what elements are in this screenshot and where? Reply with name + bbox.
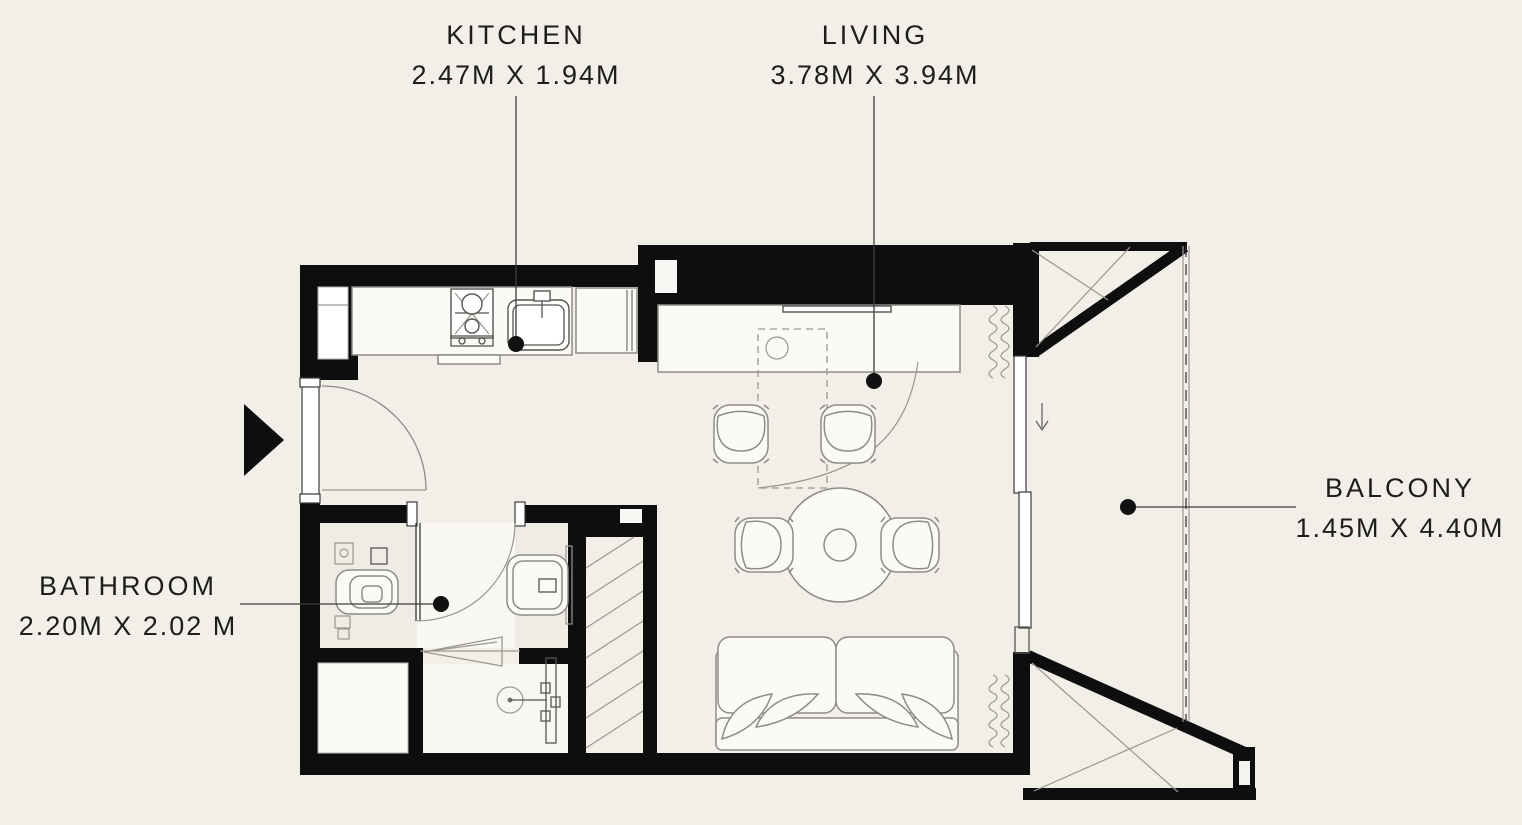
bathroom-room-size: 2.20M X 2.02 M xyxy=(19,611,238,641)
stove-icon xyxy=(451,289,493,346)
living-fixtures xyxy=(658,305,1009,750)
floor-plan-svg xyxy=(0,0,1522,825)
railing-icon xyxy=(1183,246,1189,722)
floor-plan: KITCHEN 2.47M X 1.94M LIVING 3.78M X 3.9… xyxy=(0,0,1522,825)
living-room-name: LIVING xyxy=(770,20,979,50)
dining-set xyxy=(713,405,939,602)
tv-shelf-icon xyxy=(783,306,891,312)
kitchen-room-name: KITCHEN xyxy=(411,20,620,50)
bathroom-leader-dot xyxy=(433,596,449,612)
living-counter xyxy=(658,305,960,372)
down-arrow-icon xyxy=(1036,403,1048,430)
entry-door-leaf xyxy=(302,384,319,496)
balcony-label: BALCONY 1.45M X 4.40M xyxy=(1295,473,1504,543)
sofa-icon xyxy=(716,637,958,750)
curtain-icon xyxy=(989,306,1009,747)
kitchen-label: KITCHEN 2.47M X 1.94M xyxy=(411,20,620,90)
sliding-door-icon xyxy=(1014,356,1031,653)
balcony-room-size: 1.45M X 4.40M xyxy=(1295,513,1504,543)
shaft-hatch xyxy=(586,537,643,748)
bathroom-label: BATHROOM 2.20M X 2.02 M xyxy=(19,571,238,641)
entry-arrow-icon xyxy=(244,404,284,476)
entry-door-swing xyxy=(322,386,426,490)
bathroom-room-name: BATHROOM xyxy=(19,571,238,601)
kitchen-leader-dot xyxy=(508,336,524,352)
kitchen-room-size: 2.47M X 1.94M xyxy=(411,60,620,90)
balcony-leader-dot xyxy=(1120,499,1136,515)
kitchen-fixtures xyxy=(352,287,637,364)
dining-table-icon xyxy=(783,488,897,602)
living-room-size: 3.78M X 3.94M xyxy=(770,60,979,90)
balcony-room-name: BALCONY xyxy=(1295,473,1504,503)
living-label: LIVING 3.78M X 3.94M xyxy=(770,20,979,90)
fridge-icon xyxy=(576,288,637,353)
entry-door xyxy=(300,378,426,503)
living-leader-dot xyxy=(866,373,882,389)
vanity-sink-icon xyxy=(507,546,572,624)
